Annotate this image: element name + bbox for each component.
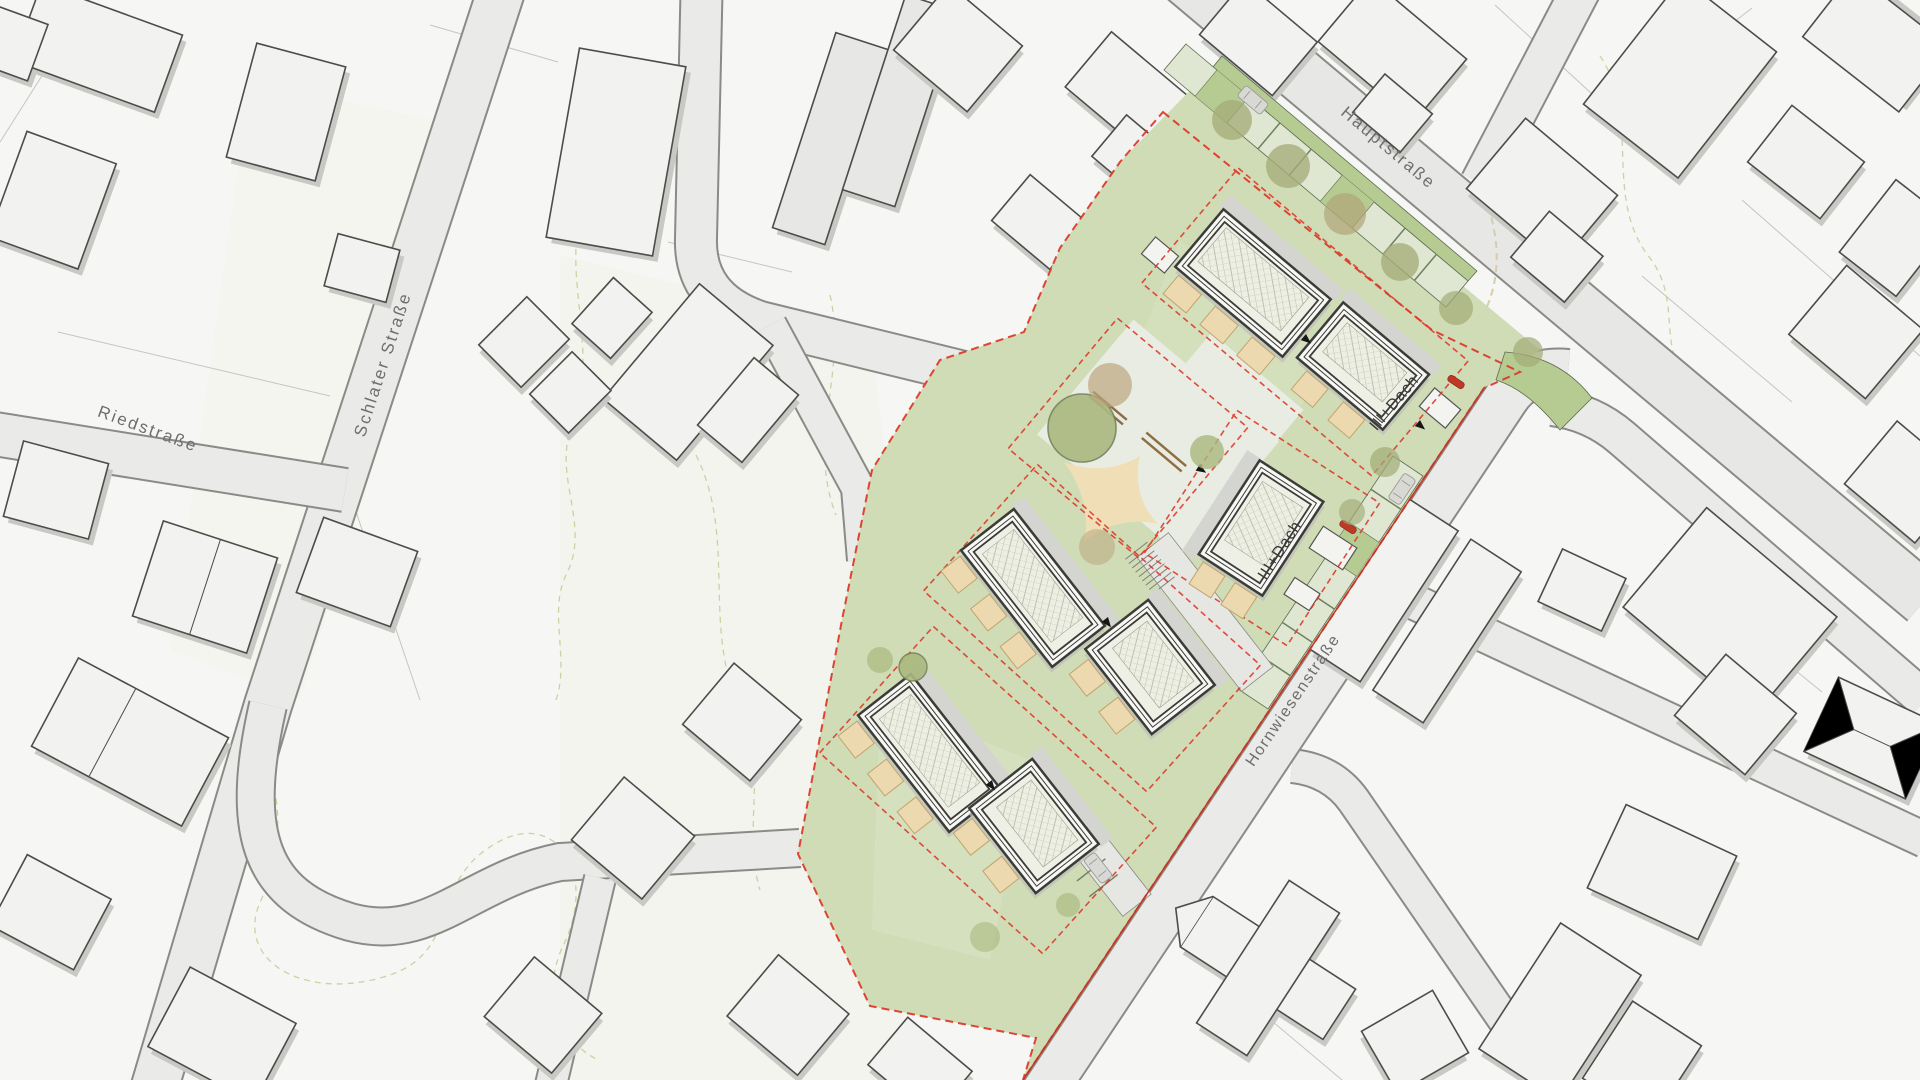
site-plan-map: Hauptstraße Schlater Straße Riedstraße H… [0, 0, 1920, 1080]
site-plan-page: Hauptstraße Schlater Straße Riedstraße H… [0, 0, 1920, 1080]
